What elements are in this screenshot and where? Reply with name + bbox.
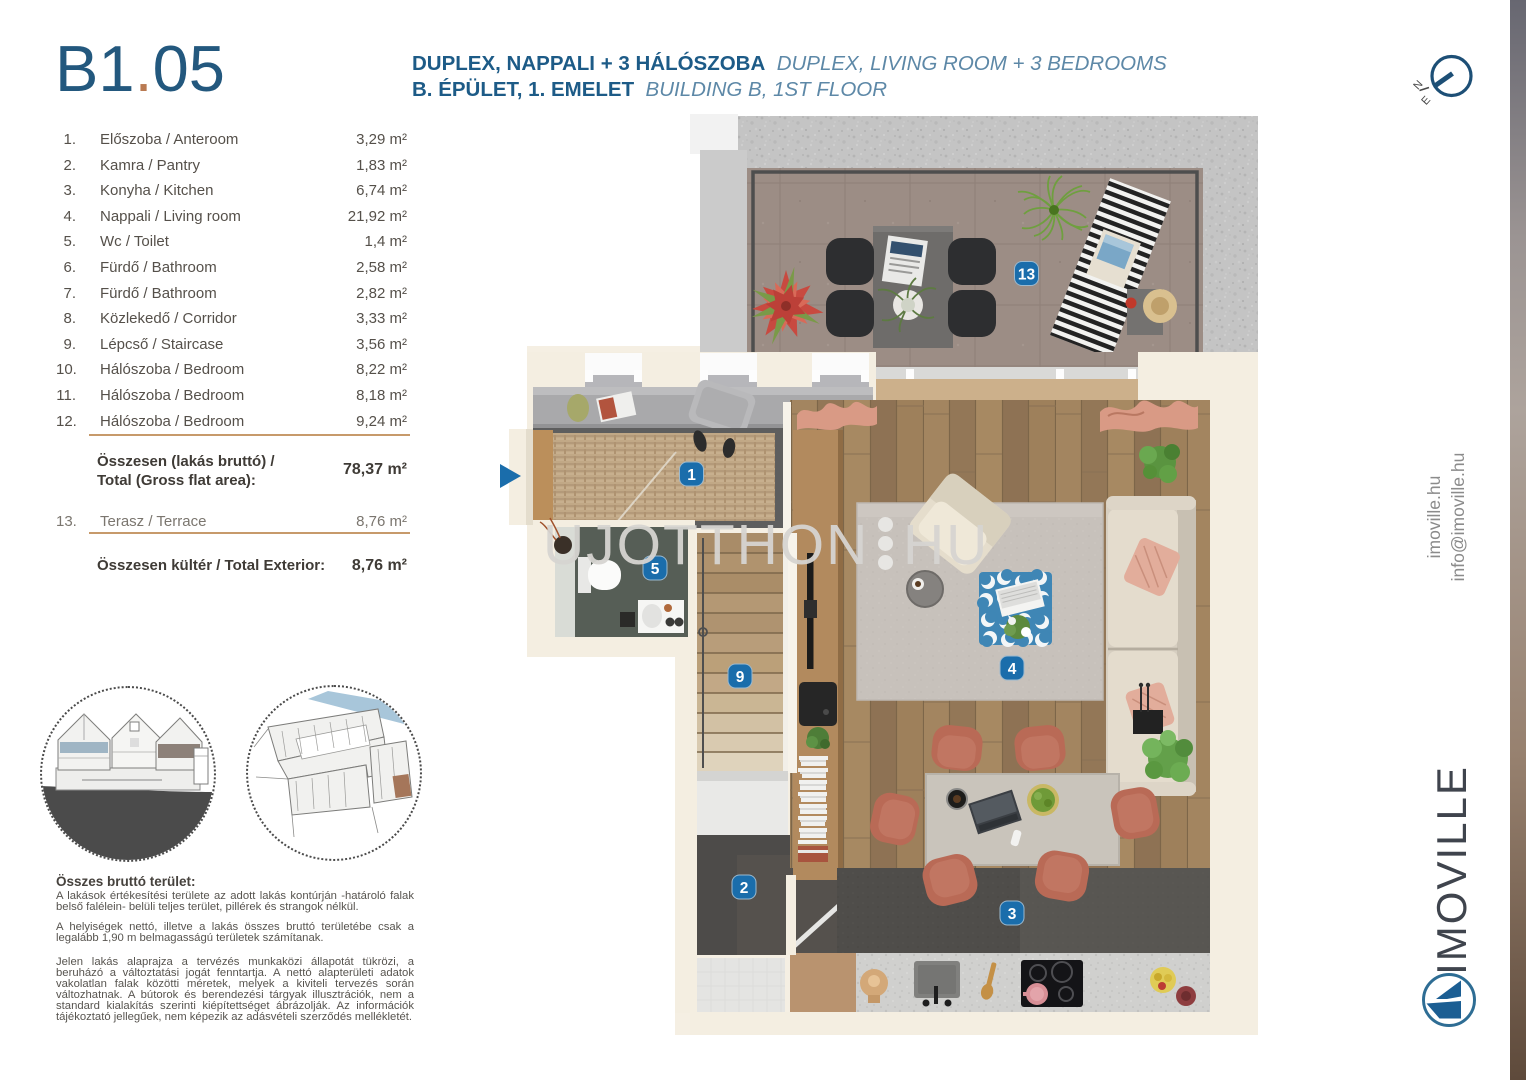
svg-text:IMOVILLE: IMOVILLE xyxy=(1428,765,1475,975)
svg-text:1: 1 xyxy=(687,467,696,484)
svg-text:13: 13 xyxy=(1018,267,1036,284)
svg-text:imoville.hu: imoville.hu xyxy=(1424,476,1444,559)
svg-text:E: E xyxy=(1419,94,1433,107)
svg-text:4: 4 xyxy=(1008,661,1017,678)
svg-text:9: 9 xyxy=(736,669,745,686)
svg-text:info@imoville.hu: info@imoville.hu xyxy=(1448,453,1468,582)
svg-text:N: N xyxy=(1411,78,1425,92)
svg-text:3: 3 xyxy=(1008,906,1017,923)
svg-text:2: 2 xyxy=(740,880,749,897)
